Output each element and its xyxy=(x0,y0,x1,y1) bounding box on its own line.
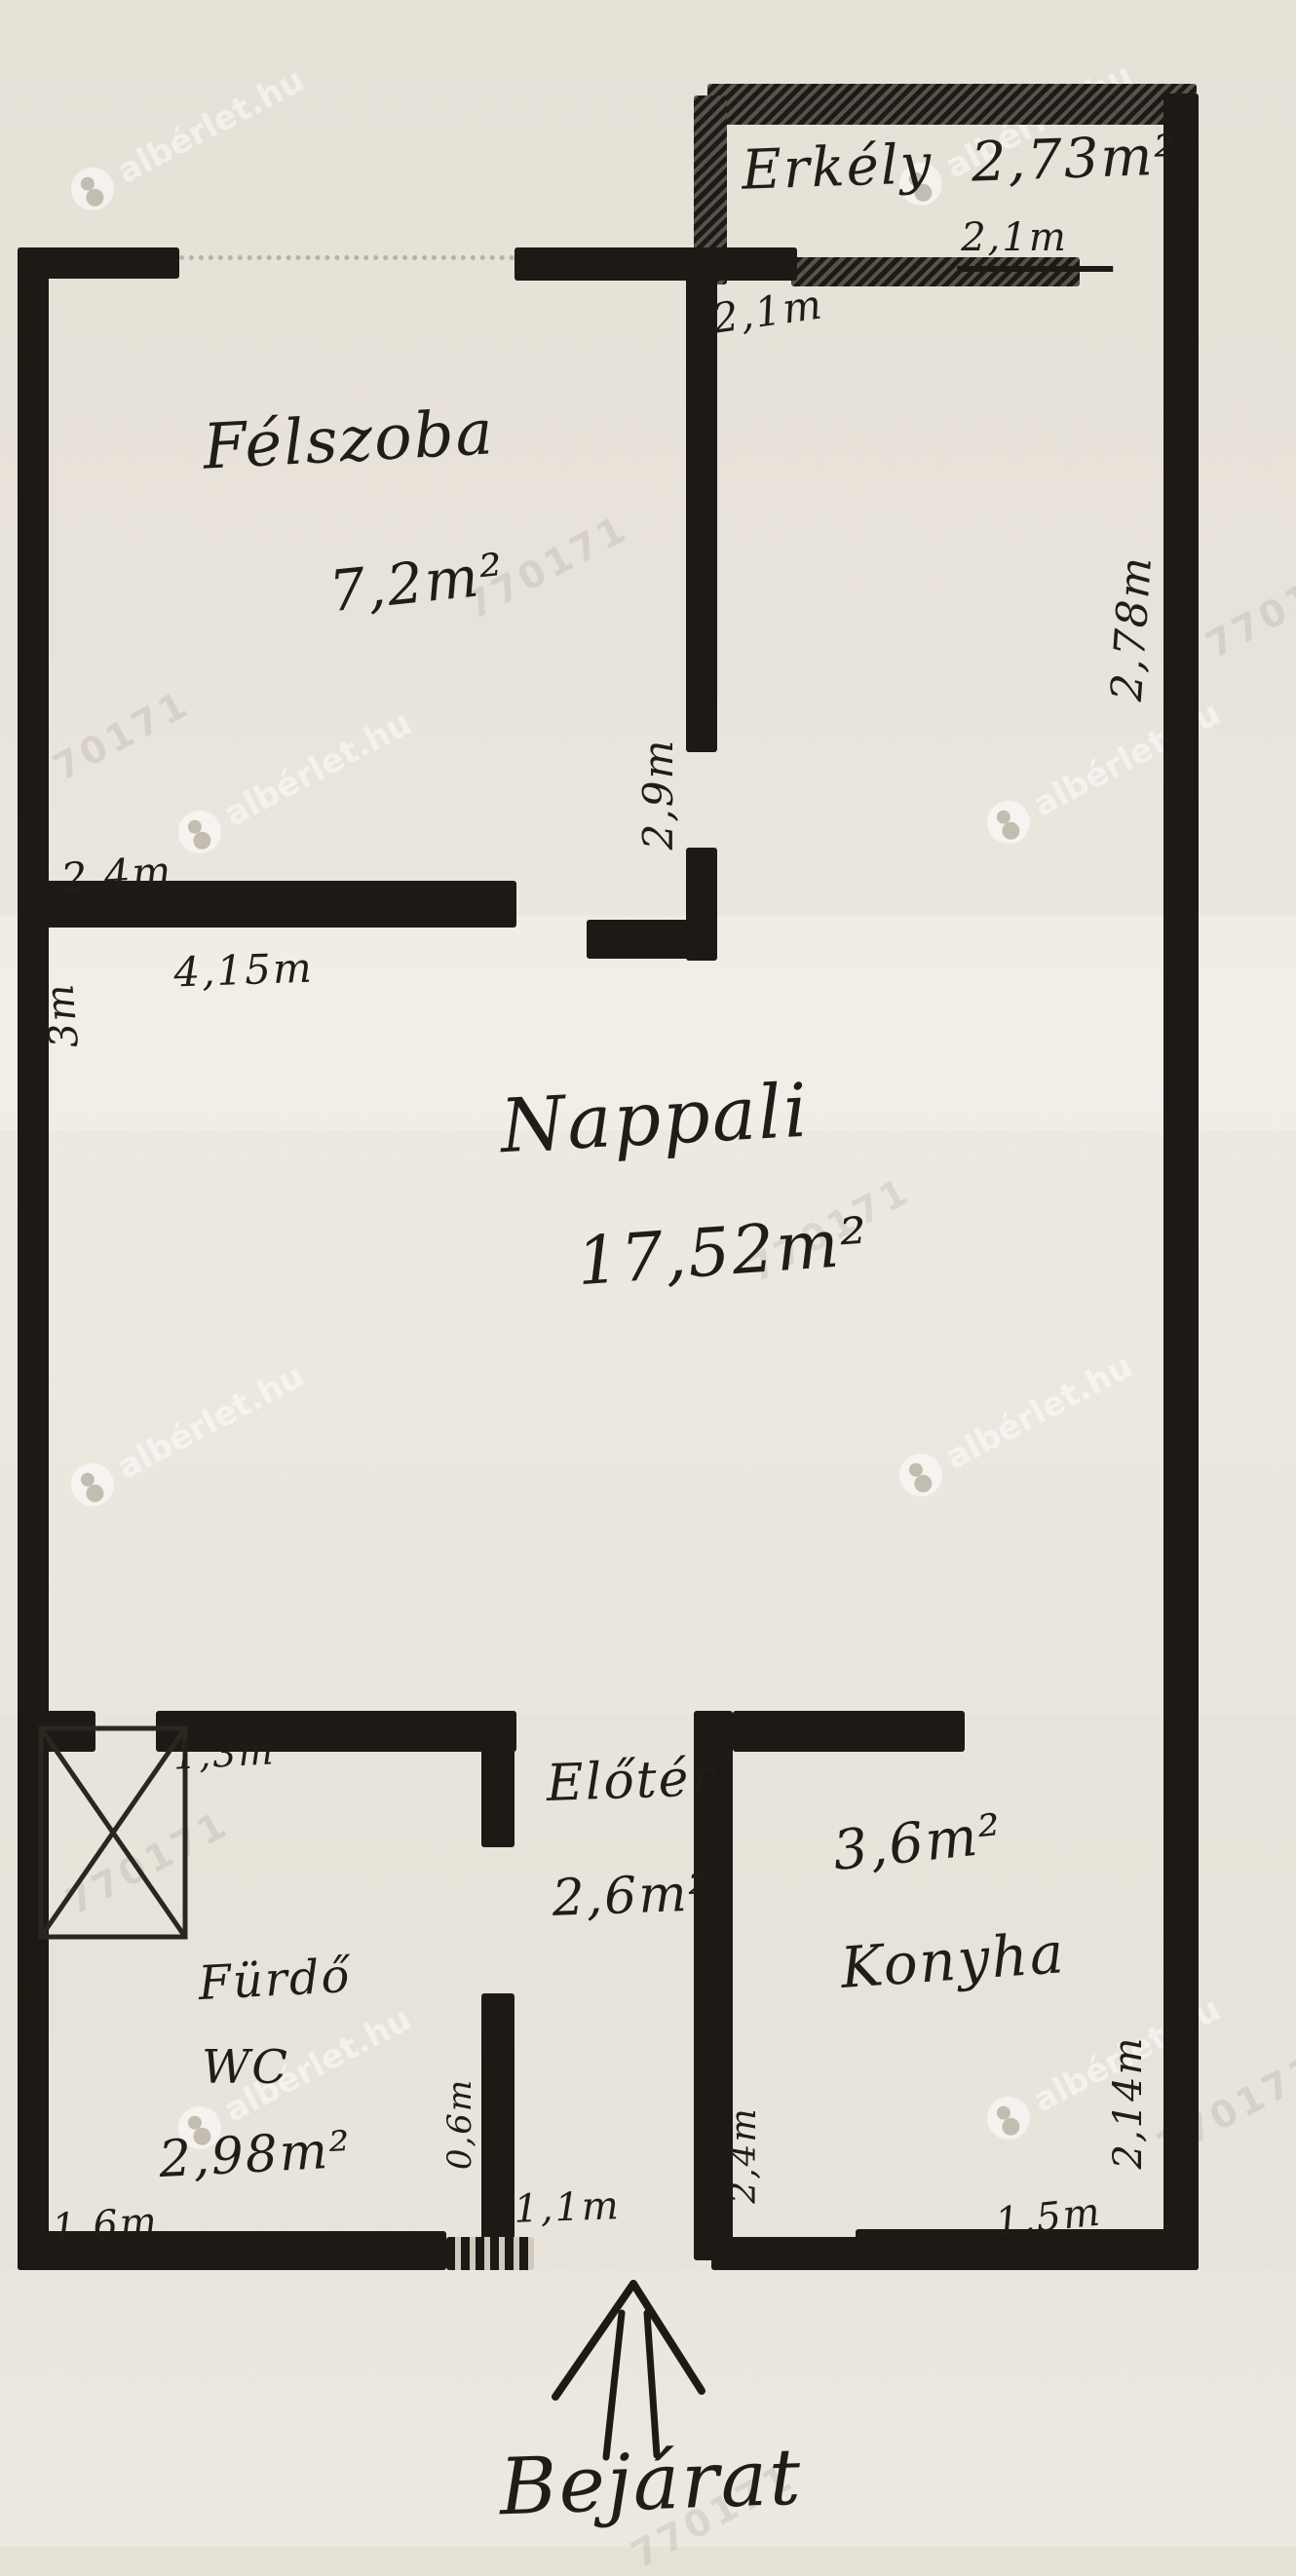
wall-left-outer xyxy=(18,247,49,2270)
albérlet-watermark: albérlet.hu xyxy=(63,58,312,217)
watermark-code: 770171 xyxy=(1199,546,1296,667)
wall-eloter-left-lower xyxy=(481,1993,515,2249)
room-eloter-area: 2,6m² xyxy=(552,1868,712,1924)
bathtub-crossed-box xyxy=(37,1724,189,1941)
dim-furdo-top: 1,3m xyxy=(172,1732,276,1774)
watermark-logo-icon xyxy=(979,793,1038,852)
wall-top-left xyxy=(18,247,179,279)
albérlet-watermark: albérlet.hu xyxy=(171,701,419,860)
dim-erkely-door: 2,1m xyxy=(709,284,825,340)
wall-top-window-faint xyxy=(179,255,515,260)
entrance-label: Bejárat xyxy=(498,2439,803,2527)
dim-right-wall-upper: 2,78m xyxy=(1106,554,1159,702)
dim-felszoba-door: 2,9m xyxy=(638,739,679,851)
dim-erkely-width: 2,1m xyxy=(957,218,1113,257)
wall-top-right xyxy=(515,247,797,281)
room-nappali-area: 17,52m² xyxy=(575,1210,871,1297)
room-nappali-label: Nappali xyxy=(499,1074,812,1163)
wall-felszoba-right xyxy=(686,277,717,752)
room-felszoba-area: 7,2m² xyxy=(326,546,508,621)
room-erkely-label: Erkély 2,73m² xyxy=(741,129,1179,199)
watermark-logo-icon xyxy=(63,160,122,218)
wall-konyha-top xyxy=(733,1711,965,1752)
dim-eloter-bottom: 1,1m xyxy=(514,2186,622,2229)
albérlet-watermark: albérlet.hu xyxy=(63,1354,312,1513)
watermark-logo-icon xyxy=(892,1446,950,1504)
watermark-logo-icon xyxy=(979,2089,1038,2147)
room-eloter-label: Előtér xyxy=(546,1753,717,1809)
wall-right-outer xyxy=(1163,94,1199,2270)
watermark-logo-icon xyxy=(171,803,229,861)
floor-plan-scan: { "watermark": { "brand": "albérlet.hu",… xyxy=(0,0,1296,2547)
dim-konyha-right: 2,14m xyxy=(1109,2036,1148,2170)
albérlet-watermark: albérlet.hu xyxy=(892,1345,1140,1503)
wall-eloter-left-upper xyxy=(481,1711,515,1847)
dim-eloter-left: 0,6m xyxy=(443,2078,476,2170)
watermark-logo-icon xyxy=(63,1456,122,1514)
dim-nappali-left: 3m xyxy=(40,981,85,1050)
room-felszoba-label: Félszoba xyxy=(202,401,496,479)
dim-eloter-right: 2,4m xyxy=(727,2106,762,2203)
room-furdo-area: 2,98m² xyxy=(158,2125,353,2185)
paper-light-band xyxy=(0,1130,1296,1715)
erkely-area: 2,73m² xyxy=(971,124,1179,194)
dim-furdo-bottom: 1,6m xyxy=(51,2202,160,2249)
wall-bottom-door-hatch xyxy=(446,2237,534,2270)
wall-balcony-top xyxy=(707,84,1197,125)
room-furdo-label-line1: Fürdő xyxy=(197,1952,352,2007)
dim-konyha-bottom: 1,5m xyxy=(993,2192,1103,2242)
room-konyha-area: 3,6m² xyxy=(830,1807,1006,1879)
erkely-name: Erkély xyxy=(741,133,934,203)
room-konyha-label: Konyha xyxy=(839,1924,1067,1996)
dim-felszoba-bottom-above: 2,4m xyxy=(59,851,173,899)
dim-felszoba-bottom-below: 4,15m xyxy=(173,948,315,994)
wall-felszoba-door-stub-h xyxy=(587,920,717,959)
room-furdo-label-line2: WC xyxy=(202,2044,289,2091)
